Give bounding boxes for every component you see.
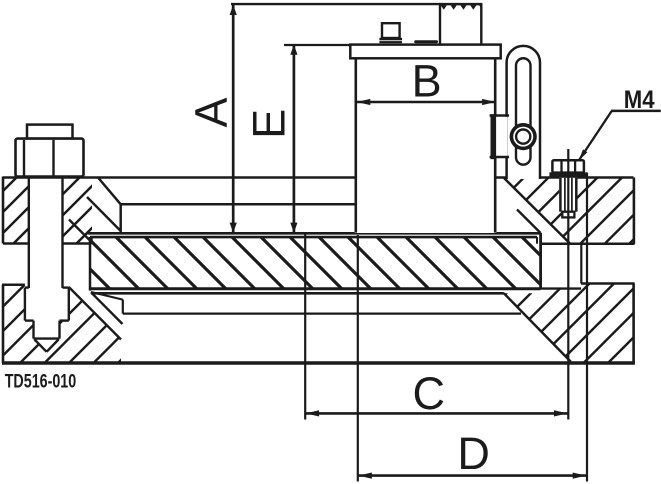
svg-text:C: C: [412, 368, 445, 419]
svg-text:D: D: [457, 428, 490, 479]
svg-text:B: B: [412, 56, 442, 107]
svg-text:E: E: [244, 109, 295, 139]
svg-text:TD516-010: TD516-010: [5, 370, 77, 392]
svg-text:A: A: [185, 98, 236, 128]
svg-text:M4: M4: [624, 86, 655, 114]
